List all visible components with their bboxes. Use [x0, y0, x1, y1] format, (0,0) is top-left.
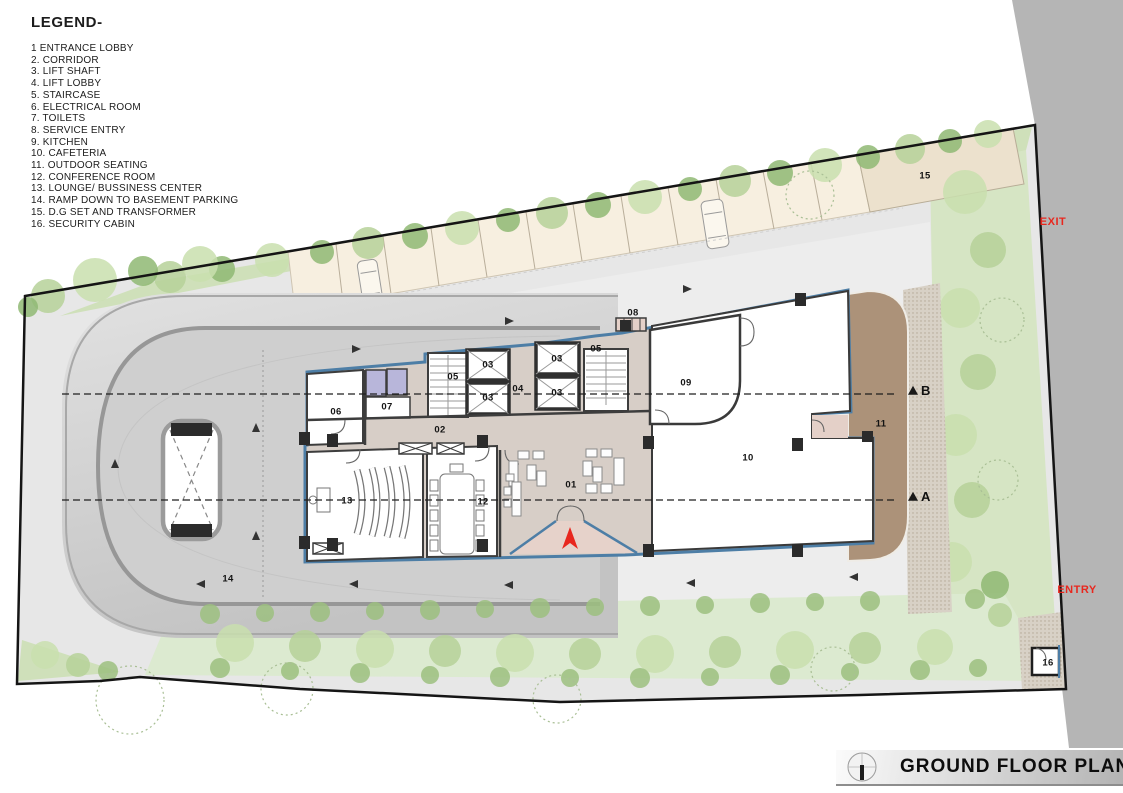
section-marker-a: A: [908, 489, 930, 504]
section-letter: B: [921, 383, 930, 398]
room-label-lift-shaft-b: 03: [482, 393, 493, 404]
plan-labels: EXIT ENTRY 01020303030304050506070809101…: [0, 0, 1123, 793]
section-marker-b: B: [908, 383, 930, 398]
section-letter: A: [921, 489, 930, 504]
north-arrow-icon: [846, 751, 878, 783]
room-label-lounge-business-center: 13: [341, 496, 352, 507]
room-label-security-cabin: 16: [1042, 658, 1053, 669]
sheet-title: GROUND FLOOR PLAN: [900, 756, 1123, 778]
entry-label: ENTRY: [1057, 584, 1096, 596]
room-label-lift-shaft-c: 03: [551, 354, 562, 365]
ground-floor-plan-sheet: LEGEND- 1 ENTRANCE LOBBY2. CORRIDOR3. LI…: [0, 0, 1123, 793]
room-label-toilets: 07: [381, 402, 392, 413]
room-label-staircase-a: 05: [447, 372, 458, 383]
room-label-outdoor-seating: 11: [876, 419, 887, 430]
room-label-electrical-room: 06: [330, 407, 341, 418]
room-label-conference-room: 12: [477, 497, 488, 508]
room-label-entrance-lobby: 01: [565, 480, 576, 491]
section-triangle-icon: [908, 492, 918, 501]
room-label-cafeteria: 10: [742, 453, 753, 464]
room-label-kitchen: 09: [680, 378, 691, 389]
room-label-lift-shaft-d: 03: [551, 388, 562, 399]
section-triangle-icon: [908, 386, 918, 395]
room-label-dg-set-transformer: 15: [919, 171, 930, 182]
room-label-lift-shaft-a: 03: [482, 360, 493, 371]
room-label-service-entry: 08: [627, 308, 638, 319]
exit-label: EXIT: [1040, 216, 1066, 228]
room-label-lift-lobby: 04: [512, 384, 523, 395]
title-bar: GROUND FLOOR PLAN: [836, 750, 1123, 786]
room-label-corridor: 02: [434, 425, 445, 436]
room-label-basement-ramp: 14: [222, 574, 233, 585]
room-label-staircase-b: 05: [590, 344, 601, 355]
